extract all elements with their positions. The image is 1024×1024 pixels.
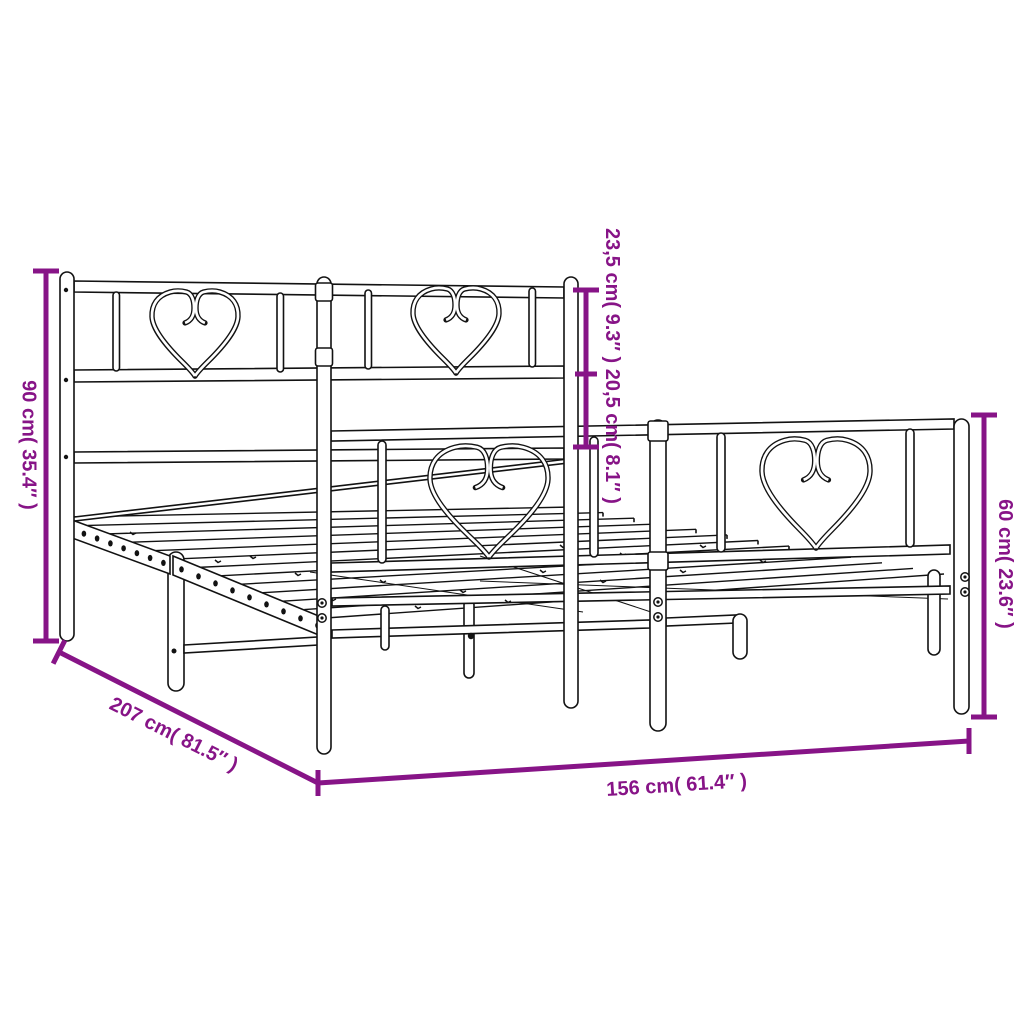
svg-text:23,5 cm( 9.3″ ) 20,5 cm( 8.1″: 23,5 cm( 9.3″ ) 20,5 cm( 8.1″ )	[601, 228, 623, 504]
svg-text:60 cm( 23.6″ ): 60 cm( 23.6″ )	[994, 499, 1016, 629]
svg-text:90 cm( 35.4″ ): 90 cm( 35.4″ )	[18, 380, 40, 510]
